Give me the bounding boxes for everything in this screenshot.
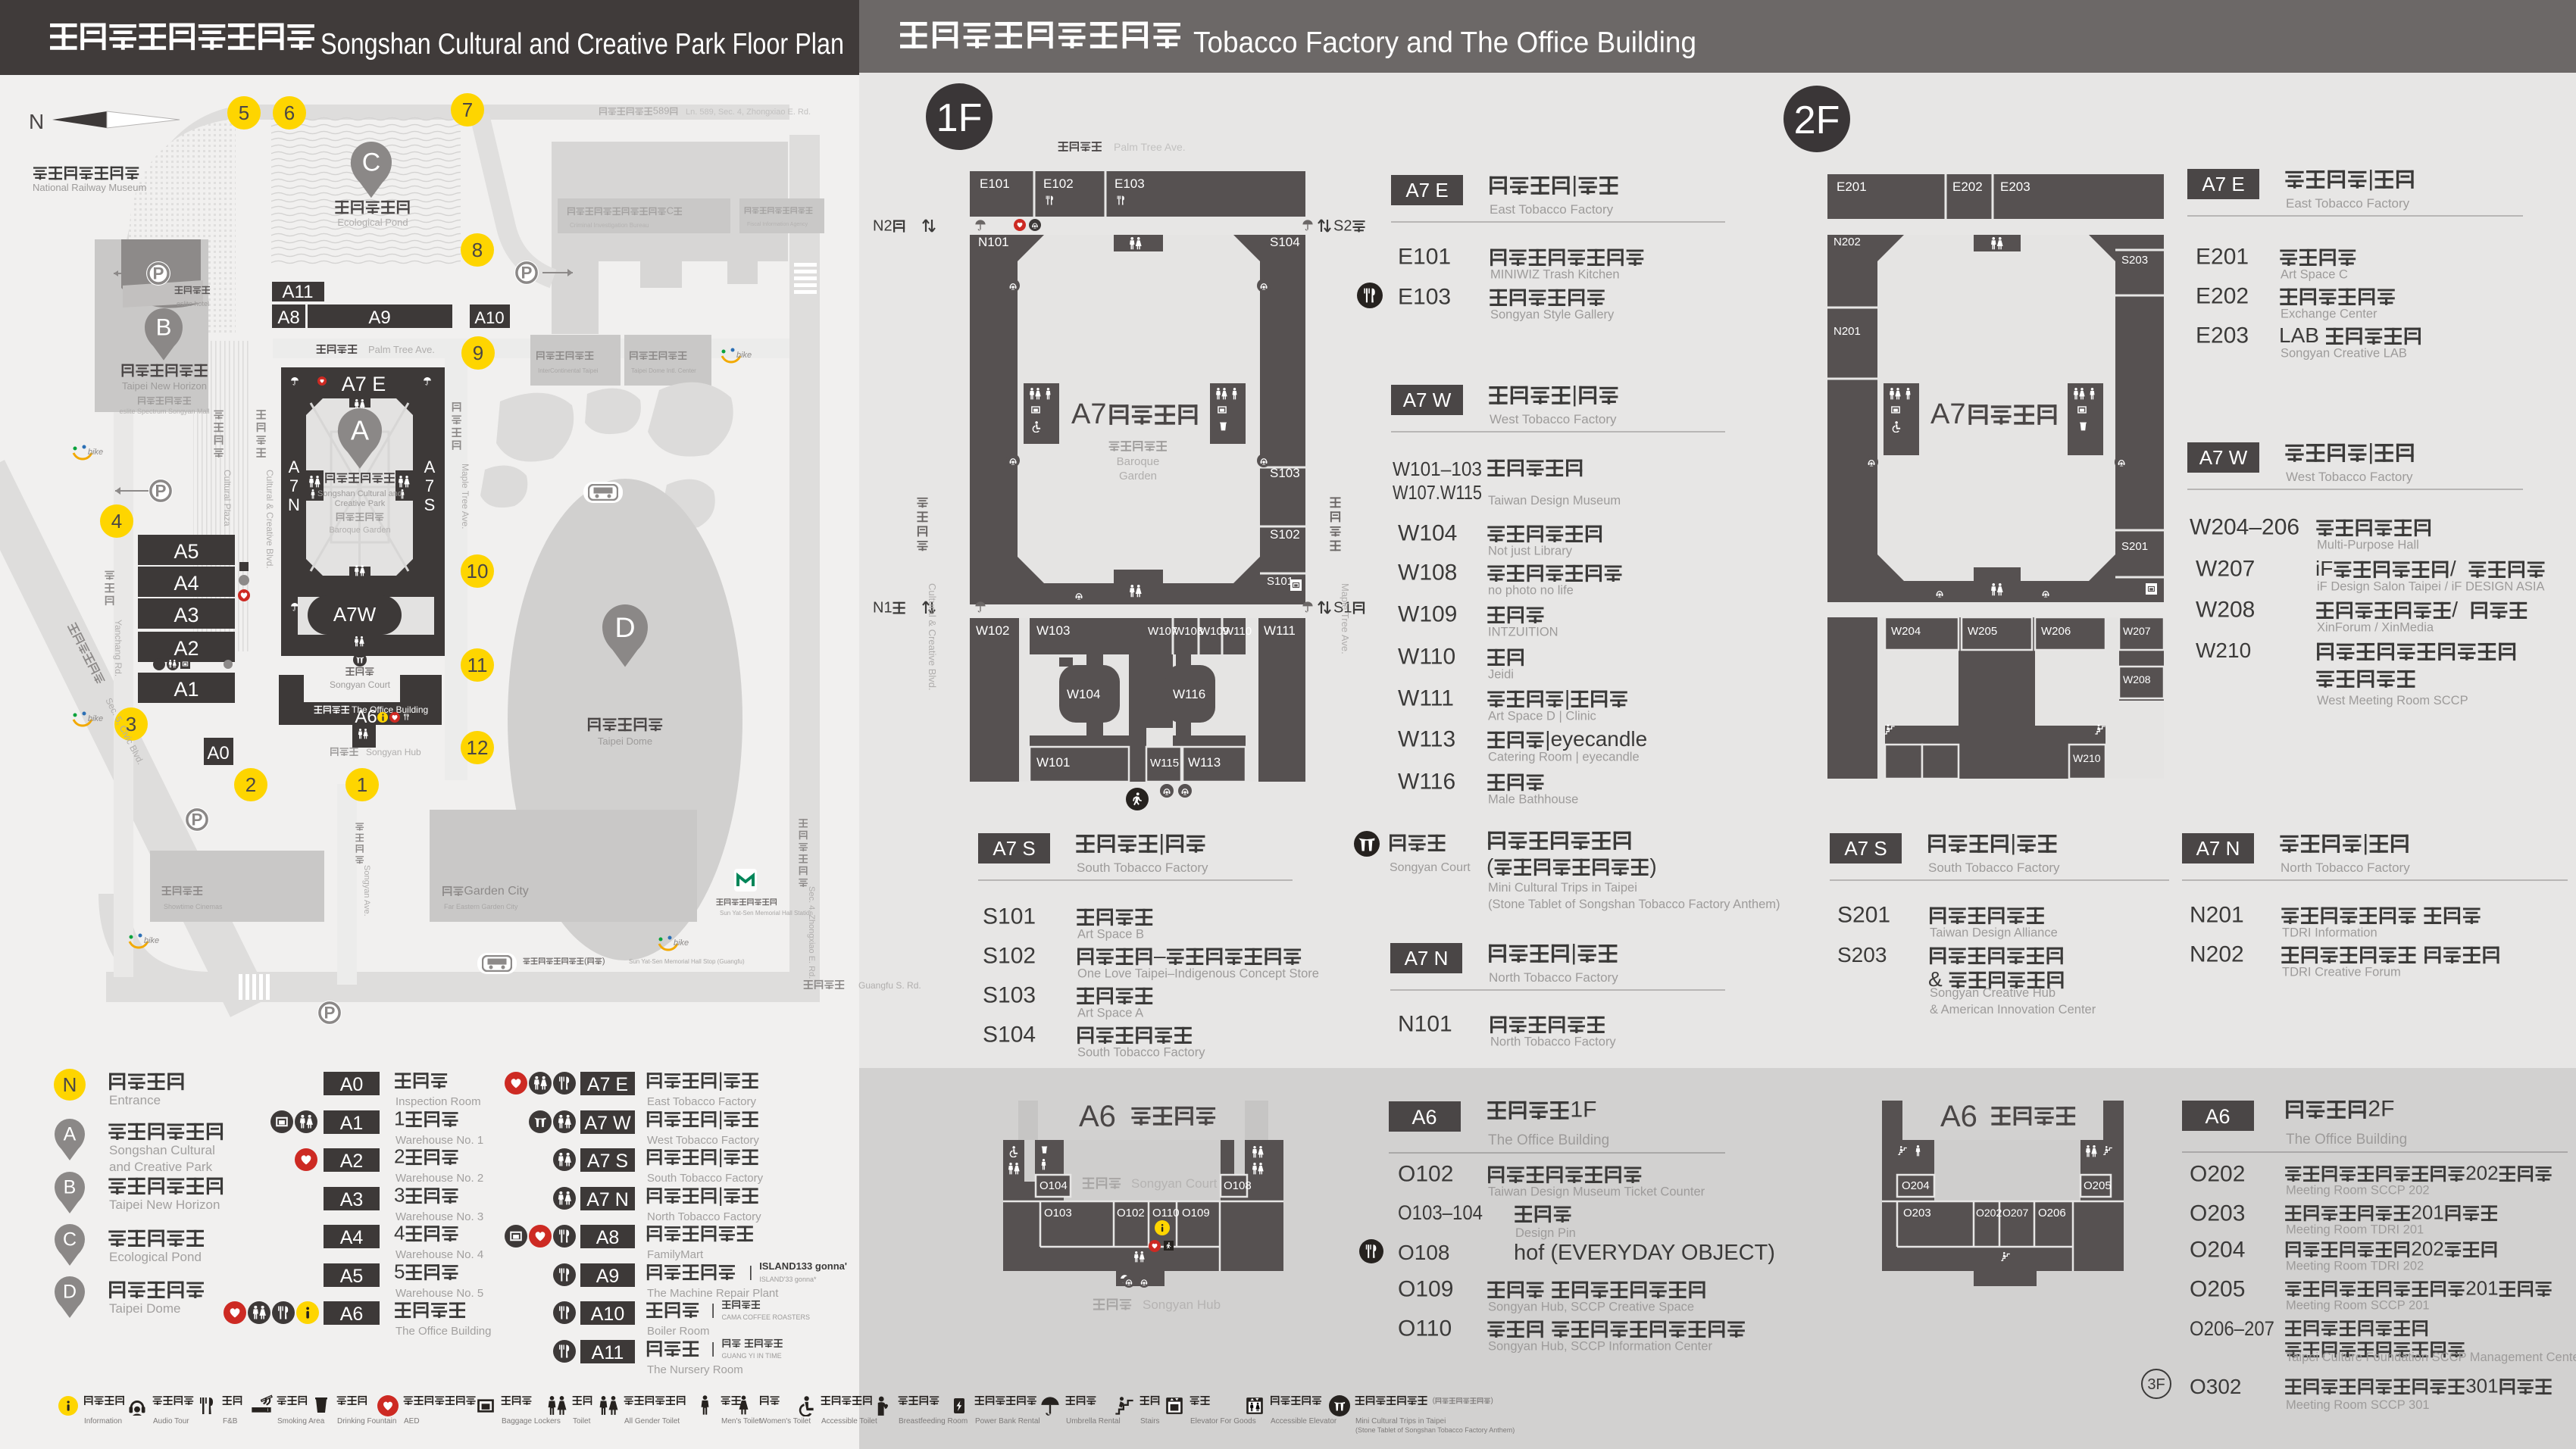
svg-text:Audio Tour: Audio Tour (153, 1417, 189, 1426)
svg-text:LAB: LAB (2279, 323, 2319, 347)
svg-text:|: | (718, 1068, 724, 1091)
svg-text:W113: W113 (1398, 727, 1455, 752)
svg-text:|: | (1565, 686, 1570, 710)
svg-text:2F: 2F (1794, 98, 1840, 142)
svg-text:S102: S102 (983, 944, 1036, 969)
svg-text:S101: S101 (983, 904, 1036, 929)
svg-text:W208: W208 (2123, 673, 2151, 685)
svg-text:W104: W104 (1067, 687, 1100, 701)
svg-text:Ecological Pond: Ecological Pond (337, 217, 408, 228)
svg-text:Garden: Garden (1119, 470, 1157, 482)
svg-text:S: S (424, 495, 436, 514)
svg-text:A7W: A7W (333, 603, 377, 626)
svg-text:1: 1 (357, 773, 367, 796)
svg-text:1: 1 (394, 1107, 405, 1129)
svg-text:|: | (2362, 831, 2368, 856)
svg-text:S103: S103 (1270, 466, 1300, 480)
svg-text:O102: O102 (1117, 1207, 1145, 1219)
svg-text:Drinking Fountain: Drinking Fountain (337, 1417, 396, 1426)
svg-text:Multi-Purpose Hall: Multi-Purpose Hall (2317, 539, 2419, 552)
svg-text:E203: E203 (2000, 180, 2030, 194)
svg-text:O109: O109 (1182, 1207, 1210, 1219)
svg-text:N202: N202 (2190, 942, 2244, 967)
svg-text:O104: O104 (1039, 1179, 1068, 1192)
svg-text:Cultural & Creative Blvd.: Cultural & Creative Blvd. (264, 470, 275, 569)
svg-text:A4: A4 (174, 572, 199, 595)
svg-text:Songyan Hub, SCCP Information: Songyan Hub, SCCP Information Center (1488, 1340, 1712, 1354)
svg-text:Taiwan Design Museum: Taiwan Design Museum (1488, 494, 1621, 507)
svg-text:S2: S2 (1333, 217, 1352, 234)
svg-text:North Tobacco Factory: North Tobacco Factory (1489, 970, 1618, 985)
svg-text:West Tobacco Factory: West Tobacco Factory (2286, 470, 2413, 484)
svg-text:Warehouse No. 4: Warehouse No. 4 (395, 1248, 483, 1261)
svg-text:W110: W110 (1223, 625, 1252, 638)
svg-text:Baroque Garden: Baroque Garden (329, 526, 390, 535)
svg-text:): ) (1649, 854, 1656, 878)
svg-text:S201: S201 (1837, 903, 1890, 928)
svg-text:Toilet: Toilet (573, 1417, 591, 1426)
svg-text:W101–103: W101–103 (1393, 457, 1482, 480)
svg-text:5: 5 (239, 101, 249, 124)
svg-text:The Office Building: The Office Building (2286, 1132, 2407, 1148)
svg-text:Palm Tree Ave.: Palm Tree Ave. (1114, 141, 1186, 153)
svg-text:Ecological Pond: Ecological Pond (109, 1250, 202, 1264)
svg-text:South Tobacco Factory: South Tobacco Factory (1928, 860, 2060, 875)
svg-text:Taiwan Design Alliance: Taiwan Design Alliance (1930, 926, 2058, 940)
svg-text:201: 201 (2465, 1276, 2498, 1299)
svg-text:Jeidi: Jeidi (1488, 668, 1514, 682)
svg-text:12: 12 (467, 736, 489, 759)
svg-text:TDRI Information: TDRI Information (2282, 926, 2377, 940)
svg-text:Accessible Elevator: Accessible Elevator (1271, 1417, 1337, 1426)
svg-text:Women's Toilet: Women's Toilet (760, 1417, 811, 1426)
svg-text:S104: S104 (983, 1023, 1036, 1048)
svg-text:A7 E: A7 E (342, 373, 386, 395)
svg-text:W210: W210 (2196, 639, 2251, 662)
svg-text:|: | (2368, 440, 2374, 465)
svg-text:|: | (1158, 831, 1165, 856)
svg-text:W204–206: W204–206 (2190, 515, 2299, 540)
svg-text:A7 E: A7 E (1405, 179, 1448, 201)
svg-text:11: 11 (467, 654, 488, 676)
svg-text:D: D (614, 611, 635, 643)
svg-text:West Tobacco Factory: West Tobacco Factory (1490, 412, 1617, 426)
svg-text:P: P (153, 264, 164, 283)
svg-text:The Office Building: The Office Building (1488, 1132, 1609, 1148)
svg-text:A10: A10 (591, 1304, 624, 1325)
svg-text:Taipei Dome: Taipei Dome (109, 1301, 181, 1316)
svg-text:hof (EVERYDAY OBJECT): hof (EVERYDAY OBJECT) (1514, 1241, 1775, 1265)
svg-text:P: P (521, 264, 533, 283)
svg-text:S101: S101 (1267, 575, 1293, 588)
svg-text:O202: O202 (2190, 1162, 2245, 1187)
svg-text:A1: A1 (340, 1113, 364, 1134)
svg-text:W115: W115 (1150, 757, 1179, 770)
svg-text:|: | (711, 1341, 715, 1357)
svg-text:W116: W116 (1398, 770, 1455, 795)
svg-text:F&B: F&B (223, 1417, 238, 1426)
svg-text:C: C (63, 1229, 77, 1251)
svg-text:Baggage Lockers: Baggage Lockers (502, 1417, 561, 1426)
svg-text:7: 7 (425, 476, 434, 495)
svg-text:Sun Yat-Sen Memorial Hall Stat: Sun Yat-Sen Memorial Hall Station (720, 910, 813, 917)
svg-text:A6: A6 (1079, 1100, 1116, 1133)
svg-text:N202: N202 (1834, 236, 1861, 248)
svg-text:E103: E103 (1114, 176, 1145, 191)
svg-text:InterContinental Taipei: InterContinental Taipei (538, 367, 599, 374)
svg-text:A4: A4 (340, 1227, 364, 1248)
svg-text:Warehouse No. 3: Warehouse No. 3 (395, 1210, 483, 1223)
svg-text:& American Innovation Center: & American Innovation Center (1930, 1003, 2096, 1016)
svg-text:North Tobacco Factory: North Tobacco Factory (1490, 1035, 1616, 1049)
svg-text:Songyan Hub: Songyan Hub (366, 747, 421, 757)
svg-text:O110: O110 (1398, 1316, 1452, 1341)
svg-text:|: | (718, 1183, 724, 1206)
svg-text:S201: S201 (2121, 540, 2148, 553)
svg-text:4: 4 (111, 510, 122, 532)
svg-text:O103: O103 (1044, 1207, 1072, 1219)
svg-text:Warehouse No. 2: Warehouse No. 2 (395, 1172, 483, 1185)
svg-text:O203: O203 (1903, 1207, 1931, 1219)
svg-text:1F: 1F (936, 96, 983, 140)
svg-text:A11: A11 (283, 282, 314, 302)
svg-text:Sec. 4, Zhongxiao E. Rd.: Sec. 4, Zhongxiao E. Rd. (807, 886, 816, 979)
svg-text:CAMA COFFEE ROASTERS: CAMA COFFEE ROASTERS (722, 1313, 811, 1321)
svg-text:–: – (1154, 944, 1166, 967)
svg-text:O108: O108 (1224, 1179, 1252, 1192)
svg-text:A11: A11 (592, 1342, 624, 1363)
svg-text:Warehouse No. 1: Warehouse No. 1 (395, 1134, 483, 1147)
svg-text:A: A (351, 414, 370, 445)
svg-text:W210: W210 (2073, 752, 2101, 764)
svg-text:bike: bike (88, 448, 103, 457)
svg-text:Art Space C: Art Space C (2281, 268, 2348, 282)
svg-text:O302: O302 (2190, 1375, 2242, 1398)
svg-text:|: | (711, 1302, 715, 1319)
svg-text:Maple Tree Ave.: Maple Tree Ave. (1340, 583, 1351, 654)
svg-text:|: | (749, 1264, 752, 1281)
svg-text:West Tobacco Factory: West Tobacco Factory (647, 1134, 759, 1147)
svg-text:Baroque: Baroque (1117, 455, 1160, 468)
svg-text:A9: A9 (596, 1266, 620, 1287)
svg-text:MINIWIZ Trash Kitchen: MINIWIZ Trash Kitchen (1490, 268, 1620, 282)
svg-text:O205: O205 (2190, 1277, 2245, 1302)
svg-text:W113: W113 (1188, 755, 1221, 770)
svg-text:and Creative Park: and Creative Park (109, 1160, 213, 1174)
svg-text:A7 W: A7 W (584, 1113, 631, 1134)
svg-text:A6: A6 (2205, 1105, 2230, 1128)
svg-text:A7: A7 (1930, 398, 1965, 430)
svg-text:E202: E202 (2196, 284, 2249, 309)
svg-text:A8: A8 (596, 1227, 620, 1248)
svg-text:E101: E101 (1398, 245, 1451, 270)
svg-text:Warehouse No. 5: Warehouse No. 5 (395, 1287, 483, 1300)
svg-text:Entrance: Entrance (109, 1093, 161, 1107)
svg-text:(Stone Tablet of Songshan Toba: (Stone Tablet of Songshan Tobacco Factor… (1488, 898, 1780, 911)
svg-text:Meeting Room TDRI 201: Meeting Room TDRI 201 (2286, 1223, 2424, 1237)
svg-text:589: 589 (653, 105, 670, 117)
svg-text:D: D (63, 1282, 77, 1303)
svg-text:iF Design Salon Taipei / iF DE: iF Design Salon Taipei / iF DESIGN ASIA (2317, 580, 2545, 594)
svg-text:E201: E201 (2196, 245, 2249, 270)
svg-text:Meeting Room SCCP 202: Meeting Room SCCP 202 (2286, 1184, 2430, 1198)
svg-text:A7 S: A7 S (1844, 837, 1887, 860)
svg-text:bike: bike (736, 351, 752, 360)
svg-text:W101: W101 (1036, 755, 1070, 770)
svg-text:A7: A7 (1071, 398, 1106, 430)
svg-text:Creative Park: Creative Park (335, 499, 386, 508)
svg-text:O207: O207 (2002, 1207, 2028, 1219)
svg-text:301: 301 (2465, 1374, 2498, 1397)
svg-text:iF: iF (2315, 557, 2333, 580)
svg-text:W207: W207 (2123, 625, 2151, 637)
svg-text:A8: A8 (277, 308, 299, 328)
svg-text:): ) (602, 957, 605, 966)
svg-text:O202: O202 (1976, 1207, 2002, 1219)
svg-text:O204: O204 (2190, 1238, 2245, 1263)
svg-text:|: | (1571, 941, 1577, 966)
svg-text:7: 7 (462, 98, 473, 121)
svg-text:North Tobacco Factory: North Tobacco Factory (647, 1210, 761, 1223)
svg-text:/: / (2450, 557, 2456, 580)
svg-text:W204: W204 (1891, 625, 1921, 638)
svg-text:Art Space D | Clinic: Art Space D | Clinic (1488, 710, 1596, 723)
svg-text:A0: A0 (340, 1074, 364, 1095)
svg-text:ISLAND133 gonna': ISLAND133 gonna' (759, 1260, 847, 1272)
svg-text:Songshan Cultural and Creative: Songshan Cultural and Creative Park Floo… (320, 28, 844, 61)
svg-text:Songyan Hub, SCCP Creative Spa: Songyan Hub, SCCP Creative Space (1488, 1301, 1694, 1314)
svg-text:A7 N: A7 N (2196, 837, 2240, 860)
svg-text:eslite Spectrum Songyan Mall: eslite Spectrum Songyan Mall (119, 408, 209, 415)
svg-text:North Tobacco Factory: North Tobacco Factory (2281, 860, 2410, 875)
svg-text:Songyan Creative Hub: Songyan Creative Hub (1930, 986, 2055, 1000)
svg-text:/: / (2452, 598, 2458, 621)
svg-text:A1: A1 (174, 678, 199, 701)
svg-text:Male Bathhouse: Male Bathhouse (1488, 793, 1578, 807)
svg-text:S102: S102 (1270, 527, 1300, 542)
svg-text:Art Space B: Art Space B (1077, 928, 1144, 942)
svg-text:O206–207: O206–207 (2190, 1317, 2274, 1340)
svg-text:E203: E203 (2196, 323, 2249, 348)
svg-text:S103: S103 (983, 983, 1036, 1008)
svg-text:4: 4 (394, 1221, 405, 1244)
svg-text:E202: E202 (1952, 180, 1983, 194)
svg-text:A3: A3 (340, 1189, 364, 1210)
svg-text:Songyan Court: Songyan Court (1131, 1176, 1218, 1191)
svg-text:no photo no life: no photo no life (1488, 584, 1574, 598)
svg-text:|: | (718, 1107, 724, 1129)
svg-text:5: 5 (394, 1260, 405, 1282)
svg-text:O204: O204 (1902, 1179, 1930, 1192)
svg-text:A: A (289, 457, 300, 476)
svg-text:Far Eastern Garden City: Far Eastern Garden City (444, 903, 518, 910)
svg-text:East Tobacco Factory: East Tobacco Factory (2286, 196, 2410, 211)
svg-text:A9: A9 (368, 308, 390, 328)
svg-text:AED: AED (404, 1417, 420, 1426)
svg-text:Elevator For Goods: Elevator For Goods (1190, 1417, 1256, 1426)
svg-text:Songyan Creative LAB: Songyan Creative LAB (2281, 347, 2407, 361)
svg-text:A5: A5 (340, 1266, 364, 1287)
svg-text:|: | (2368, 167, 2374, 192)
svg-text:A5: A5 (174, 540, 199, 563)
svg-text:W111: W111 (1264, 623, 1296, 638)
svg-text:(: ( (584, 957, 587, 966)
svg-text:A0: A0 (207, 743, 229, 764)
svg-text:Criminal Investigation Bureau: Criminal Investigation Bureau (570, 222, 649, 229)
svg-text:A7 S: A7 S (993, 837, 1035, 860)
svg-text:B: B (64, 1177, 77, 1198)
svg-text:E103: E103 (1398, 285, 1451, 310)
svg-text:2: 2 (245, 773, 256, 796)
svg-text:bike: bike (144, 936, 159, 945)
svg-text:Taipei New Horizon: Taipei New Horizon (122, 380, 207, 392)
svg-text:A7 E: A7 E (2202, 173, 2244, 195)
svg-text:A7 S: A7 S (587, 1151, 628, 1172)
svg-text:Boiler Room: Boiler Room (647, 1325, 710, 1338)
svg-text:Guangfu S. Rd.: Guangfu S. Rd. (858, 980, 921, 991)
svg-text:O203: O203 (2190, 1201, 2245, 1226)
svg-text:Taipei Culture Foundation SCCP: Taipei Culture Foundation SCCP Managemen… (2286, 1351, 2576, 1364)
svg-text:Ln. 589, Sec. 4, Zhongxiao E.: Ln. 589, Sec. 4, Zhongxiao E. Rd. (686, 108, 811, 117)
svg-text:O102: O102 (1398, 1162, 1453, 1187)
svg-text:N201: N201 (1834, 325, 1861, 338)
svg-text:3F: 3F (2147, 1376, 2165, 1393)
svg-text:Maple Tree Ave.: Maple Tree Ave. (460, 464, 470, 529)
svg-text:Cultural & Creative Blvd.: Cultural & Creative Blvd. (927, 583, 938, 691)
svg-text:8: 8 (472, 239, 483, 261)
svg-text:Information: Information (84, 1417, 122, 1426)
svg-text:S203: S203 (2121, 254, 2148, 267)
svg-text:XinForum / XinMedia: XinForum / XinMedia (2317, 621, 2434, 635)
svg-text:bike: bike (674, 938, 689, 948)
svg-text:One Love Taipei–Indigenous Con: One Love Taipei–Indigenous Concept Store (1077, 967, 1319, 981)
svg-text:The Nursery Room: The Nursery Room (647, 1363, 743, 1376)
svg-text:P: P (155, 482, 167, 501)
svg-text:|: | (1571, 383, 1577, 408)
svg-text:W102: W102 (976, 623, 1009, 638)
svg-text:A3: A3 (174, 604, 199, 626)
svg-text:202: 202 (2465, 1161, 2498, 1184)
svg-text:W111: W111 (1398, 686, 1454, 711)
svg-text:Garden City: Garden City (464, 885, 528, 898)
svg-text:Songyan Style Gallery: Songyan Style Gallery (1490, 308, 1615, 322)
svg-text:Taipei Dome Intl. Center: Taipei Dome Intl. Center (631, 367, 696, 374)
svg-text:201: 201 (2411, 1201, 2443, 1223)
svg-text:3: 3 (394, 1183, 405, 1206)
svg-text:9: 9 (473, 342, 483, 364)
svg-text:S104: S104 (1270, 235, 1300, 249)
svg-text:N101: N101 (978, 235, 1009, 249)
svg-text:Smoking Area: Smoking Area (277, 1417, 325, 1426)
svg-text:(Stone Tablet of Songshan Toba: (Stone Tablet of Songshan Tobacco Factor… (1355, 1426, 1515, 1434)
svg-text:Tobacco Factory and The Office: Tobacco Factory and The Office Building (1193, 27, 1696, 59)
svg-text:Art Space A: Art Space A (1077, 1007, 1143, 1020)
svg-text:A6: A6 (1940, 1100, 1977, 1133)
svg-text:N: N (63, 1073, 77, 1096)
svg-text:South Tobacco Factory: South Tobacco Factory (1077, 860, 1208, 875)
svg-text:Songyan Hub: Songyan Hub (1143, 1298, 1221, 1312)
svg-text:Exchange Center: Exchange Center (2281, 308, 2377, 321)
svg-text:TDRI Creative Forum: TDRI Creative Forum (2282, 966, 2401, 979)
svg-text:E101: E101 (980, 176, 1010, 191)
svg-text:N201: N201 (2190, 903, 2244, 928)
svg-text:W208: W208 (2196, 598, 2255, 623)
svg-text:Design Pin: Design Pin (1515, 1226, 1576, 1240)
svg-text:Umbrella Rental: Umbrella Rental (1066, 1417, 1121, 1426)
svg-text:ISLAND'33 gonna*: ISLAND'33 gonna* (759, 1276, 817, 1283)
svg-text:A7 N: A7 N (1405, 947, 1449, 970)
svg-text:N1: N1 (873, 599, 893, 616)
svg-text:W207: W207 (2196, 557, 2255, 582)
svg-text:O103–104: O103–104 (1398, 1201, 1483, 1224)
svg-text:E102: E102 (1043, 176, 1074, 191)
svg-text:Breastfeeding Room: Breastfeeding Room (899, 1417, 968, 1426)
svg-text:W104: W104 (1398, 521, 1457, 546)
svg-text:|: | (2010, 831, 2016, 856)
svg-text:Fiscal Information Agency: Fiscal Information Agency (747, 222, 808, 227)
svg-text:P: P (324, 1004, 336, 1023)
svg-text:W103: W103 (1036, 623, 1070, 638)
svg-text:2F: 2F (2368, 1097, 2394, 1122)
svg-text:National Railway Museum: National Railway Museum (33, 182, 146, 193)
svg-text:W110: W110 (1398, 645, 1455, 670)
svg-text:Inspection Room: Inspection Room (395, 1095, 481, 1108)
svg-text:Power Bank Rental: Power Bank Rental (975, 1417, 1040, 1426)
svg-text:10: 10 (467, 560, 489, 582)
svg-text:The Machine Repair Plant: The Machine Repair Plant (647, 1287, 779, 1300)
svg-text:C: C (362, 148, 380, 177)
svg-text:E201: E201 (1837, 180, 1867, 194)
svg-text:All Gender Toilet: All Gender Toilet (624, 1417, 680, 1426)
svg-text:202: 202 (2411, 1237, 2443, 1260)
svg-text:A2: A2 (174, 637, 199, 660)
svg-text:|eyecandle: |eyecandle (1545, 727, 1647, 751)
svg-text:Mini Cultural Trips in Taipei: Mini Cultural Trips in Taipei (1488, 881, 1637, 895)
svg-text:A7 E: A7 E (587, 1074, 628, 1095)
svg-text:A7 W: A7 W (1403, 389, 1452, 411)
svg-text:Cultural Plaza: Cultural Plaza (222, 470, 233, 526)
svg-text:A: A (424, 457, 436, 476)
svg-text:A7 N: A7 N (586, 1189, 629, 1210)
svg-text:Meeting Room SCCP 201: Meeting Room SCCP 201 (2286, 1299, 2430, 1313)
svg-text:Men's Toilet: Men's Toilet (721, 1417, 761, 1426)
svg-text:O205: O205 (2084, 1179, 2112, 1192)
svg-text:S203: S203 (1837, 943, 1887, 967)
svg-text:O109: O109 (1398, 1277, 1453, 1302)
svg-text:N101: N101 (1398, 1012, 1452, 1037)
svg-text:A6: A6 (340, 1304, 364, 1325)
svg-text:Sun Yat-Sen Memorial Hall Stop: Sun Yat-Sen Memorial Hall Stop (Guangfu) (629, 958, 745, 965)
svg-text:The Office Building: The Office Building (395, 1325, 491, 1338)
svg-text:Mini Cultural Trips in Taipei: Mini Cultural Trips in Taipei (1355, 1417, 1446, 1426)
svg-text:East Tobacco Factory: East Tobacco Factory (647, 1095, 756, 1108)
svg-text:): ) (1491, 1397, 1493, 1405)
svg-text:2: 2 (394, 1145, 405, 1167)
svg-text:Not just Library: Not just Library (1488, 545, 1573, 558)
svg-text:O110: O110 (1152, 1207, 1180, 1219)
svg-text:South Tobacco Factory: South Tobacco Factory (647, 1172, 764, 1185)
svg-text:Songyan Court: Songyan Court (330, 679, 391, 690)
svg-text:West Meeting Room SCCP: West Meeting Room SCCP (2317, 694, 2468, 707)
svg-text:W116: W116 (1173, 687, 1205, 701)
svg-text:A10: A10 (474, 308, 504, 327)
svg-text:INTZUITION: INTZUITION (1488, 626, 1558, 639)
svg-text:Meeting Room SCCP 301: Meeting Room SCCP 301 (2286, 1398, 2430, 1412)
svg-text:Catering Room | eyecandle: Catering Room | eyecandle (1488, 751, 1640, 764)
svg-text:Showtime Cinemas: Showtime Cinemas (164, 903, 223, 910)
svg-text:bike: bike (88, 714, 103, 723)
svg-text:A6: A6 (1411, 1106, 1436, 1129)
